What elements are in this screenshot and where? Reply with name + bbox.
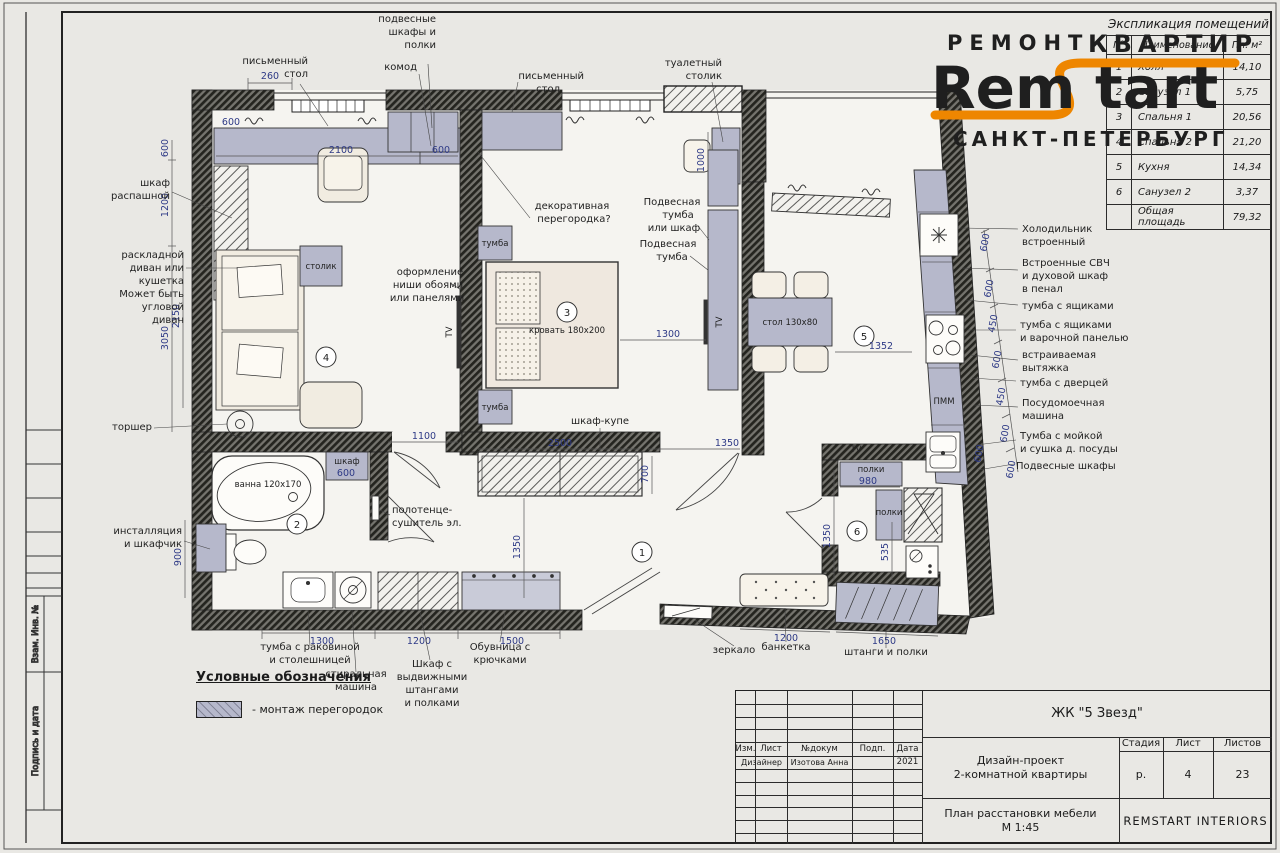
schedule-row: 5Кухня14,34: [1107, 155, 1271, 180]
schedule-col-name: Наименование: [1132, 36, 1224, 55]
decorative-partition: [664, 86, 742, 112]
company-name: REMSTART INTERIORS: [1119, 798, 1272, 844]
schedule-row: 6Санузел 23,37: [1107, 180, 1271, 205]
annotation: Подвесная: [640, 239, 697, 250]
schedule-row: 1Холл14,10: [1107, 55, 1271, 80]
annotation: перегородка?: [537, 214, 610, 225]
cell-n: 2: [1107, 80, 1132, 105]
subject: Дизайн-проект 2-комнатной квартиры: [922, 737, 1119, 798]
sheets-value: 23: [1213, 751, 1272, 798]
annotation: комод: [384, 62, 417, 73]
bathtub: [212, 456, 324, 530]
annotation: и духовой шкаф: [1022, 271, 1108, 282]
annotation: шкафы и: [389, 27, 436, 38]
annotation: Может быть: [119, 289, 184, 300]
schedule-row: Общая площадь79,32: [1107, 205, 1271, 230]
annotation: тумба с раковиной: [260, 642, 360, 653]
dim: 450: [995, 387, 1009, 407]
annotation: диван или: [129, 263, 184, 274]
annotation: Тумба с мойкой: [1019, 431, 1103, 442]
annotation: стол: [284, 69, 308, 80]
shelves-label: полки: [858, 465, 885, 475]
cell-name: Холл: [1132, 55, 1224, 80]
annotation: оформление: [397, 267, 463, 278]
schedule-row: 3Спальня 120,56: [1107, 105, 1271, 130]
room-number-bath2: 6: [854, 527, 860, 538]
dim: 600: [983, 279, 997, 299]
stamp-podpis-label: Подпись и дата: [31, 706, 41, 776]
schedule-row: 4Спальня 221,20: [1107, 130, 1271, 155]
drawing-name: План расстановки мебели М 1:45: [922, 798, 1119, 844]
cell-n: 6: [1107, 180, 1132, 205]
annotation: зеркало: [713, 645, 756, 656]
tv-label: TV: [849, 445, 861, 455]
dim: 1200: [407, 636, 431, 647]
annotation: тумба: [656, 252, 688, 263]
dim: 1300: [656, 329, 680, 340]
dim: 600: [222, 117, 240, 128]
bathtub-label: ванна 120х170: [235, 480, 302, 490]
annotation: сушитель эл.: [392, 518, 462, 529]
annotation: полки: [404, 40, 436, 51]
legend-swatch-new-partition: [196, 701, 242, 718]
dim: 1352: [869, 341, 893, 352]
dim: 3050: [160, 326, 171, 350]
nightstand-label: тумба: [482, 403, 509, 413]
annotation: банкетка: [761, 642, 810, 653]
schedule-col-area: Пл. м²: [1224, 36, 1271, 55]
rails-shelves: [835, 582, 938, 626]
schedule-header: N° Наименование Пл. м²: [1107, 36, 1271, 55]
dim: 600: [991, 350, 1005, 370]
drawing-title: План расстановки мебели: [944, 807, 1096, 821]
stage-value: р.: [1119, 751, 1163, 798]
chair: [752, 272, 786, 298]
annotation: Подвесная: [644, 197, 701, 208]
designer-name: Изотова Анна: [787, 756, 852, 769]
subject-line2: 2-комнатной квартиры: [954, 768, 1088, 782]
annotation: тумба с ящиками: [1022, 301, 1114, 312]
annotation: кушетка: [139, 276, 184, 287]
bench: [740, 574, 828, 606]
cell-area: 14,34: [1224, 155, 1271, 180]
annotation: и столешницей: [269, 655, 350, 666]
room-number-living: 4: [323, 353, 329, 364]
annotation: ниши обоями: [393, 280, 463, 291]
annotation: столик: [686, 71, 722, 82]
cell-name: Общая площадь: [1132, 205, 1224, 230]
cell-area: 21,20: [1224, 130, 1271, 155]
hanging-cabinet: [708, 210, 738, 390]
dim: 2500: [548, 438, 572, 449]
schedule-title: Экспликация помещений: [1106, 14, 1271, 35]
installation-box: [196, 524, 226, 572]
dim: 980: [859, 476, 877, 487]
room-number-kitchen: 5: [861, 332, 867, 343]
tv-label: TV: [715, 316, 725, 328]
tv-label: TV: [445, 326, 455, 338]
cell-n: 5: [1107, 155, 1132, 180]
legend-item-label: - монтаж перегородок: [252, 703, 383, 716]
annotation: торшер: [112, 422, 152, 433]
dim: 1650: [872, 636, 896, 647]
annotation: Подвесные шкафы: [1016, 461, 1116, 472]
margin-stamp: Взам. Инв. № Подпись и дата: [26, 430, 62, 810]
schedule-col-n: N°: [1107, 36, 1132, 55]
col-doc: №докум: [787, 742, 852, 756]
fan-icon: [931, 227, 947, 243]
legend-title: Условные обозначения: [196, 670, 496, 685]
annotation: раскладной: [121, 250, 184, 261]
stamp-vzam-label: Взам. Инв. №: [31, 605, 41, 664]
pillow: [496, 272, 540, 324]
dim: 1350: [512, 535, 523, 559]
chair: [794, 272, 828, 298]
annotation: Обувница с: [470, 642, 531, 653]
annotation: угловой: [142, 302, 184, 313]
cell-name: Санузел 1: [1132, 80, 1224, 105]
mirror: [664, 605, 712, 619]
annotation: Посудомоечная: [1022, 398, 1105, 409]
subject-line1: Дизайн-проект: [977, 754, 1064, 768]
annotation: стол: [536, 84, 560, 95]
annotation: туалетный: [665, 58, 722, 69]
dim: 1000: [696, 148, 707, 172]
wardrobe-label: шкаф-купе: [571, 416, 629, 427]
cell-area: 5,75: [1224, 80, 1271, 105]
annotation: штанги и полки: [844, 647, 928, 658]
cell-n: 3: [1107, 105, 1132, 130]
annotation: письменный: [242, 56, 308, 67]
dim: 1100: [412, 431, 436, 442]
annotation: инсталляция: [113, 526, 182, 537]
annotation: Шкаф с: [412, 659, 452, 670]
dim: 535: [880, 543, 891, 561]
annotation: тумба с дверцей: [1020, 378, 1108, 389]
date-value: 2021: [893, 756, 922, 769]
room-schedule: Экспликация помещений N° Наименование Пл…: [1106, 14, 1271, 230]
shower-unit: [904, 488, 942, 542]
cell-area: 14,10: [1224, 55, 1271, 80]
cell-n: 1: [1107, 55, 1132, 80]
sheet-header: Лист: [1163, 737, 1213, 751]
cell-n: [1107, 205, 1132, 230]
bed-label: кровать 180х200: [529, 326, 605, 336]
cell-name: Санузел 2: [1132, 180, 1224, 205]
annotation: распашной: [111, 191, 170, 202]
desk-right: [482, 112, 562, 150]
dining-table-label: стол 130х80: [762, 318, 817, 328]
annotation: Встроенные СВЧ: [1022, 258, 1110, 269]
dim: 600: [979, 233, 993, 253]
annotation: в пенал: [1022, 284, 1063, 295]
washer-2: [906, 546, 938, 578]
annotation: встраиваемая: [1022, 350, 1096, 361]
chair: [794, 346, 828, 372]
col-sign: Подп.: [852, 742, 893, 756]
room-number-bedroom: 3: [564, 308, 570, 319]
dim: 260: [261, 71, 279, 82]
annotation: и сушка д. посуды: [1020, 444, 1118, 455]
title-block: ЖК "5 Звезд" Изм. Лист №докум Подп. Дата…: [735, 690, 1271, 843]
drawing-sheet: Взам. Инв. № Подпись и дата: [0, 0, 1280, 853]
annotation: и шкафчик: [124, 539, 182, 550]
dishwasher-label: ПММ: [933, 397, 954, 407]
sheets-header: Листов: [1213, 737, 1272, 751]
dim: 2100: [329, 145, 353, 156]
annotation: тумба: [662, 210, 694, 221]
cell-area: 79,32: [1224, 205, 1271, 230]
annotation: машина: [1022, 411, 1064, 422]
dim: 600: [160, 139, 171, 157]
dim: 1350: [822, 524, 833, 548]
room-number-bath1: 2: [294, 520, 300, 531]
annotation: крючками: [474, 655, 527, 666]
designer-role: Дизайнер: [736, 756, 787, 769]
annotation: тумба с ящиками: [1020, 320, 1112, 331]
annotation: шкаф: [140, 178, 170, 189]
cell-name: Спальня 2: [1132, 130, 1224, 155]
annotation: Холодильник: [1022, 224, 1092, 235]
annotation: или шкаф: [648, 223, 700, 234]
annotation: декоративная: [535, 201, 610, 212]
schedule-row: 2Санузел 15,75: [1107, 80, 1271, 105]
shelves-label: полки: [876, 508, 903, 518]
col-izm: Изм.: [736, 742, 755, 756]
cell-name: Спальня 1: [1132, 105, 1224, 130]
dim: 600: [337, 468, 355, 479]
nightstand-label: тумба: [482, 239, 509, 249]
drawing-scale: М 1:45: [1002, 821, 1040, 835]
annotation: письменный: [518, 71, 584, 82]
shoe-rack: [462, 572, 560, 610]
room-number-hall: 1: [639, 548, 645, 559]
dim: 700: [640, 465, 651, 483]
toilet-bowl: [234, 540, 266, 564]
cell-n: 4: [1107, 130, 1132, 155]
sheet-value: 4: [1163, 751, 1213, 798]
annotation: подвесные: [378, 14, 436, 25]
tv-living: [457, 296, 461, 368]
col-date: Дата: [893, 742, 922, 756]
cell-area: 20,56: [1224, 105, 1271, 130]
chair: [752, 346, 786, 372]
annotation: и варочной панелью: [1020, 333, 1128, 344]
cell-name: Кухня: [1132, 155, 1224, 180]
annotation: или панелями: [390, 293, 464, 304]
armchair-bottom: [300, 382, 362, 428]
project-name: ЖК "5 Звезд": [922, 691, 1272, 737]
bath-cabinet-label: шкаф: [334, 457, 359, 467]
dim: 900: [173, 548, 184, 566]
col-list: Лист: [755, 742, 787, 756]
dim: 1350: [715, 438, 739, 449]
towel-dryer: [372, 496, 379, 520]
coffee-table-label: столик: [306, 262, 337, 272]
annotation: диван: [152, 315, 184, 326]
stage-header: Стадия: [1119, 737, 1163, 751]
annotation: вытяжка: [1022, 363, 1069, 374]
hanging-cabinet-top: [708, 150, 738, 206]
tv-bedroom: [704, 300, 707, 344]
dim: 600: [432, 145, 450, 156]
annotation: встроенный: [1022, 237, 1085, 248]
cell-area: 3,37: [1224, 180, 1271, 205]
legend: Условные обозначения - монтаж перегородо…: [196, 670, 496, 718]
schedule-table: N° Наименование Пл. м² 1Холл14,10 2Сануз…: [1106, 35, 1271, 230]
annotation: полотенце-: [392, 505, 453, 516]
